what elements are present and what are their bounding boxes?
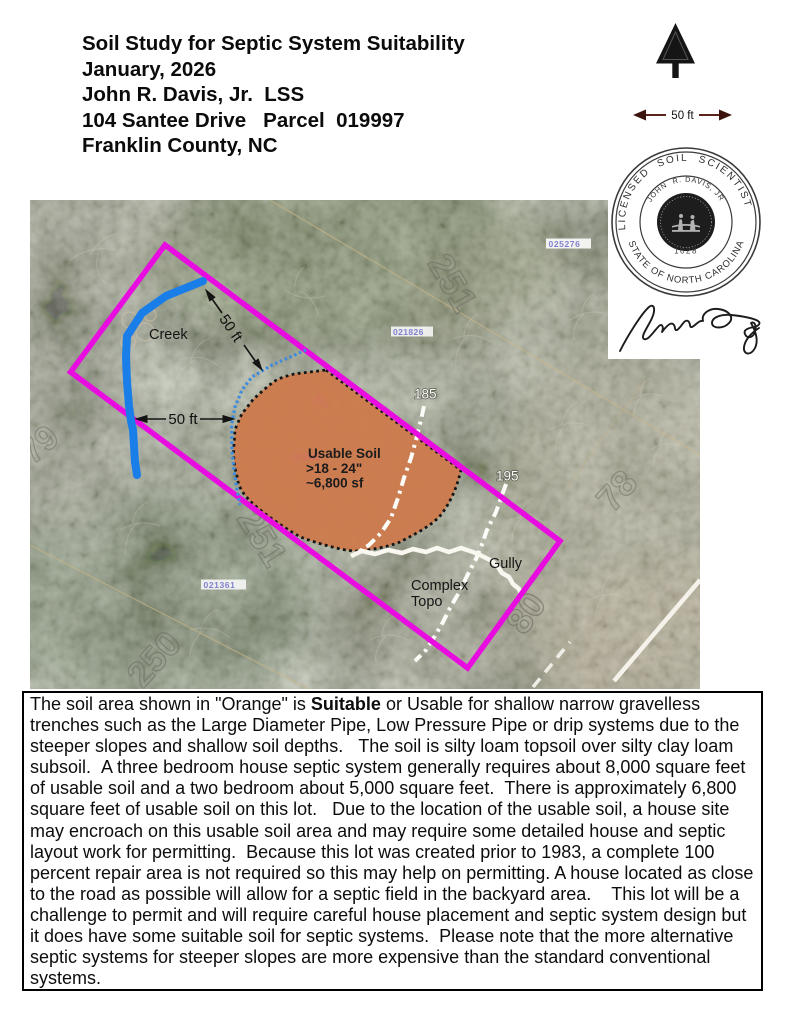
svg-text:>18 - 24": >18 - 24" xyxy=(306,461,362,476)
svg-text:50 ft: 50 ft xyxy=(168,411,198,428)
svg-text:1028: 1028 xyxy=(674,247,698,256)
svg-text:Creek: Creek xyxy=(149,327,188,343)
svg-text:Complex: Complex xyxy=(411,578,469,594)
svg-text:195: 195 xyxy=(496,469,519,484)
svg-text:021361: 021361 xyxy=(204,580,236,590)
svg-text:Usable Soil: Usable Soil xyxy=(308,446,381,461)
svg-text:021826: 021826 xyxy=(393,327,424,337)
svg-text:Topo: Topo xyxy=(411,594,442,610)
svg-text:50 ft: 50 ft xyxy=(671,110,694,122)
svg-text:Gully: Gully xyxy=(489,556,523,572)
svg-text:185: 185 xyxy=(414,387,437,402)
svg-text:025276: 025276 xyxy=(549,239,581,249)
svg-text:~6,800 sf: ~6,800 sf xyxy=(306,476,364,491)
